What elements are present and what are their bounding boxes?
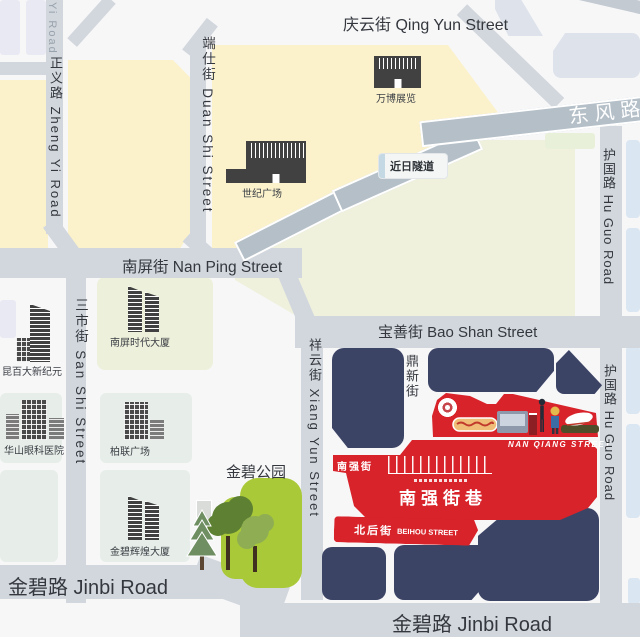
city-map: 东风路 近日隧道 北后街 BEIHOU STREET	[0, 0, 640, 637]
road-side-stub	[0, 62, 48, 75]
bolian-wing	[150, 420, 164, 440]
xiangyun-street-label: 祥云街 Xiang Yun Street	[305, 338, 324, 518]
block-navy-c	[556, 350, 602, 394]
road-corner-ne	[570, 0, 640, 16]
donut-icon	[437, 397, 458, 418]
shiji-wing	[226, 169, 246, 183]
block-yellow-mid	[68, 60, 190, 252]
kunbaida-label: 昆百大新纪元	[2, 363, 62, 378]
shiji-building-icon	[246, 141, 306, 183]
bolian-building-icon	[118, 402, 164, 440]
block-blue-east	[626, 140, 640, 218]
wanbo-label: 万博展览	[376, 90, 416, 105]
block-green-ne	[545, 133, 595, 149]
beihou-street-label-en: BEIHOU STREET	[397, 526, 458, 537]
shiji-label: 世纪广场	[242, 185, 282, 200]
block-lavender	[0, 300, 16, 338]
tunnel-badge-tab	[379, 154, 385, 178]
skyline-art	[388, 456, 492, 474]
yi-road-label: Yi Road	[46, 2, 58, 55]
shiji-body	[246, 158, 306, 183]
shoe-icon	[561, 409, 599, 434]
block-yellow-west	[0, 80, 48, 252]
nanqiang-badge-label: 南强街	[337, 458, 373, 473]
laptop-icon	[497, 411, 528, 433]
hospital-wing	[6, 414, 19, 440]
nanqiang-street-en-label: NAN QIANG STREET	[508, 440, 612, 449]
wanbo-roof	[374, 56, 421, 69]
bolian-main	[124, 402, 148, 440]
sanshi-street-label: 三市街 San Shi Street	[70, 298, 90, 465]
tower	[128, 286, 142, 332]
fine-print-line	[414, 479, 468, 482]
jinbi-park-label: 金碧公园	[226, 461, 286, 482]
huguo-road-lower-label: 护国路 Hu Guo Road	[600, 364, 619, 501]
block-green-sw	[0, 470, 58, 562]
block-blue-east	[626, 424, 640, 518]
beihou-street-label-cn: 北后街	[354, 522, 393, 539]
block-lavender	[0, 0, 20, 55]
tunnel-label: 近日隧道	[390, 158, 434, 174]
jinbi-road-right-label: 金碧路 Jinbi Road	[392, 608, 552, 637]
tower	[145, 501, 159, 540]
block-navy-e	[394, 545, 491, 600]
pine-tree-icon	[184, 508, 220, 572]
baoshan-street-label: 宝善街 Bao Shan Street	[378, 321, 537, 342]
kunbaida-building-icon	[16, 304, 54, 362]
wanbo-building-icon	[374, 56, 421, 88]
road-diagonal-nw	[67, 0, 115, 47]
tunnel-badge: 近日隧道	[379, 154, 447, 178]
hospital-main	[21, 400, 47, 440]
annex	[16, 338, 30, 362]
block-blue-east	[626, 228, 640, 312]
tower	[145, 292, 159, 332]
person-yellow-hat-icon	[548, 406, 562, 434]
laptop-screen	[500, 414, 525, 426]
nanping-towers-icon	[128, 286, 160, 332]
block-navy-d	[322, 547, 386, 600]
signpost-icon	[529, 413, 537, 435]
block-navy-f	[478, 508, 599, 601]
huashan-building-icon	[6, 400, 64, 440]
tower	[30, 304, 50, 362]
block-bluegray-ne1	[553, 33, 640, 78]
wanbo-body	[374, 69, 421, 88]
block-lavender	[26, 0, 46, 55]
nanqiang-title: 南强街巷	[399, 484, 487, 509]
block-navy-b	[428, 348, 554, 392]
duanshi-street-label: 端仕街 Duan Shi Street	[197, 36, 217, 214]
wanbo-door	[394, 79, 401, 88]
shiji-door	[273, 174, 280, 183]
bolian-label: 柏联广场	[110, 443, 150, 458]
person-icon	[537, 398, 547, 434]
jinbi-tower-label: 金碧辉煌大厦	[110, 543, 170, 558]
dongfeng-road-label: 东风路	[568, 97, 640, 128]
jinbi-road-left-label: 金碧路 Jinbi Road	[8, 571, 168, 600]
block-blue-east	[628, 578, 640, 604]
block-navy-a	[332, 348, 404, 448]
huguo-road-upper-label: 护国路 Hu Guo Road	[599, 148, 618, 285]
hospital-wing	[49, 418, 64, 440]
qingyun-street-label: 庆云街 Qing Yun Street	[343, 11, 508, 35]
nanping-street-label: 南屏街 Nan Ping Street	[122, 255, 282, 277]
nanping-tower-label: 南屏时代大厦	[110, 334, 170, 349]
shiji-roof	[246, 141, 306, 158]
dingxin-street-label: 鼎新街	[402, 354, 421, 399]
huashan-label: 华山眼科医院	[4, 442, 64, 457]
block-blue-east	[626, 346, 640, 414]
beihou-street-band: 北后街 BEIHOU STREET	[334, 516, 479, 546]
jinbi-towers-icon	[128, 496, 160, 540]
zhengyi-road-label: 正义路 Zheng Yi Road	[46, 56, 65, 219]
hotdog-icon	[452, 416, 498, 433]
tower	[128, 496, 142, 540]
